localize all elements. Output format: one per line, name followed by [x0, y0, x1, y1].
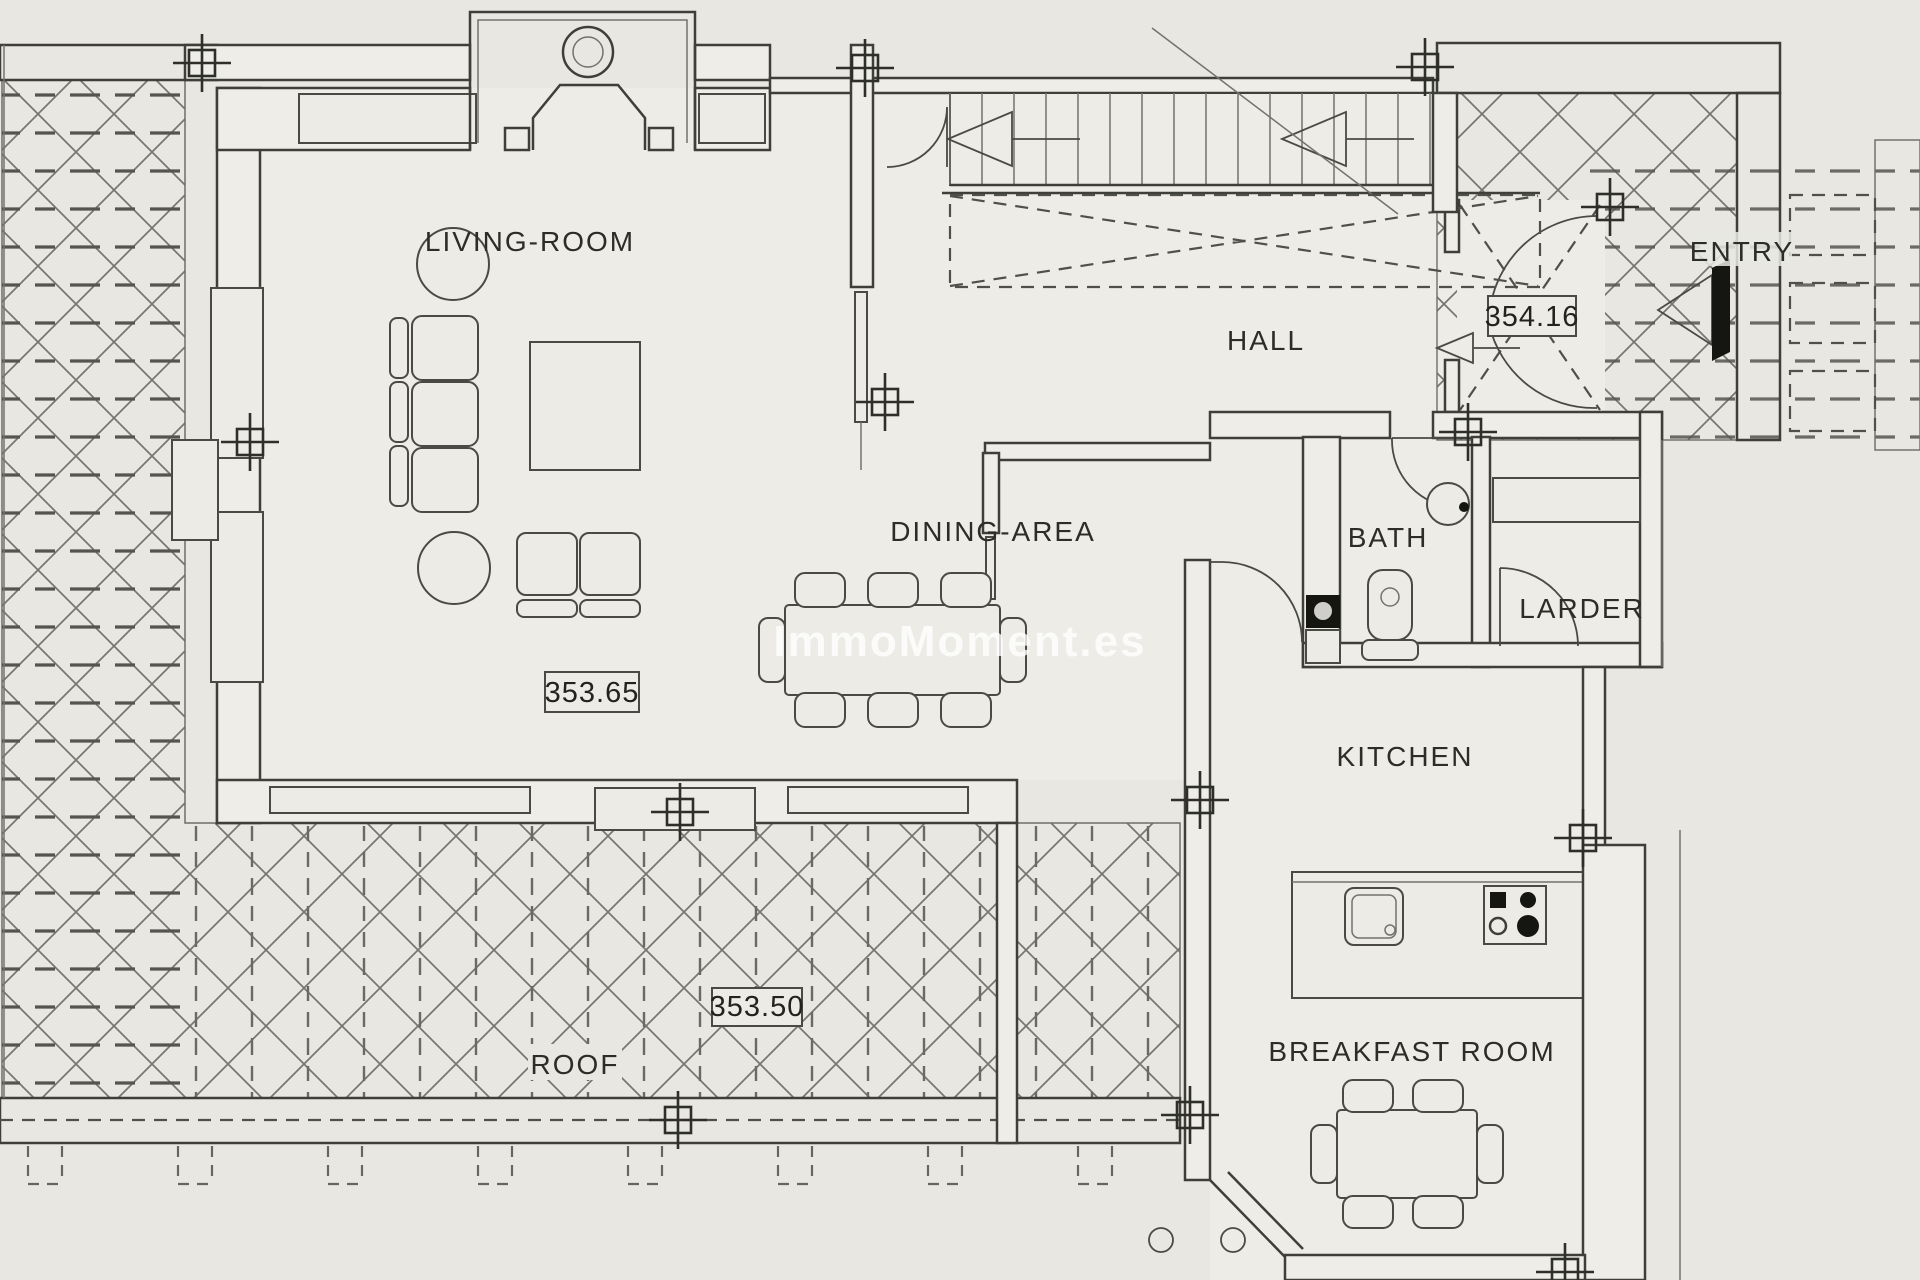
room-label-dining-area: DINING-AREA — [890, 516, 1096, 547]
elevation-marker-roof: 353.50 — [710, 988, 805, 1026]
elevation-marker-main: 353.65 — [545, 672, 640, 712]
window — [699, 94, 765, 143]
chair-icon — [1413, 1196, 1463, 1228]
elevation-value: 353.65 — [545, 677, 640, 709]
chair-icon — [941, 693, 991, 727]
room-label-breakfast-room: BREAKFAST ROOM — [1268, 1036, 1555, 1067]
kitchen-island — [1292, 872, 1583, 998]
chair-icon — [1477, 1125, 1503, 1183]
toilet-icon — [1362, 570, 1418, 660]
chair-icon — [1343, 1196, 1393, 1228]
chair-icon — [868, 693, 918, 727]
east-wall — [1583, 845, 1645, 1280]
elevation-marker-entry: 354.16 — [1485, 296, 1580, 336]
chair-icon — [941, 573, 991, 607]
cooktop-icon — [1484, 886, 1546, 944]
room-label-larder: LARDER — [1519, 593, 1645, 624]
larder-shelf — [1493, 478, 1640, 522]
chair-icon — [795, 573, 845, 607]
room-label-hall: HALL — [1227, 325, 1305, 356]
chair-icon — [868, 573, 918, 607]
floor-plan-page: 354.16 353.65 353.50 LIVING-ROOM HALL DI… — [0, 0, 1920, 1280]
chair-icon — [1413, 1080, 1463, 1112]
coffee-table-icon — [530, 342, 640, 470]
chair-icon — [795, 693, 845, 727]
elevation-value: 354.16 — [1485, 301, 1580, 333]
room-label-entry-group: ENTRY — [1690, 232, 1794, 267]
room-label-kitchen: KITCHEN — [1337, 741, 1474, 772]
watermark: ImmoMoment.es — [773, 617, 1146, 666]
room-label-living-room: LIVING-ROOM — [425, 226, 635, 257]
room-label-roof: ROOF — [531, 1049, 620, 1080]
room-label-roof-group: ROOF — [528, 1044, 622, 1080]
sofa-icon — [390, 316, 478, 512]
window — [788, 787, 968, 813]
window-sill — [172, 440, 218, 540]
chair-icon — [1311, 1125, 1337, 1183]
room-label-entry: ENTRY — [1690, 236, 1794, 267]
floor-plan-drawing: 354.16 353.65 353.50 LIVING-ROOM HALL DI… — [0, 0, 1920, 1280]
window — [270, 787, 530, 813]
kitchen-sink-icon — [1345, 888, 1403, 945]
room-label-bath: BATH — [1348, 522, 1429, 553]
window — [299, 94, 476, 143]
chair-icon — [1343, 1080, 1393, 1112]
round-table-icon — [418, 532, 490, 604]
elevation-value: 353.50 — [710, 991, 805, 1023]
